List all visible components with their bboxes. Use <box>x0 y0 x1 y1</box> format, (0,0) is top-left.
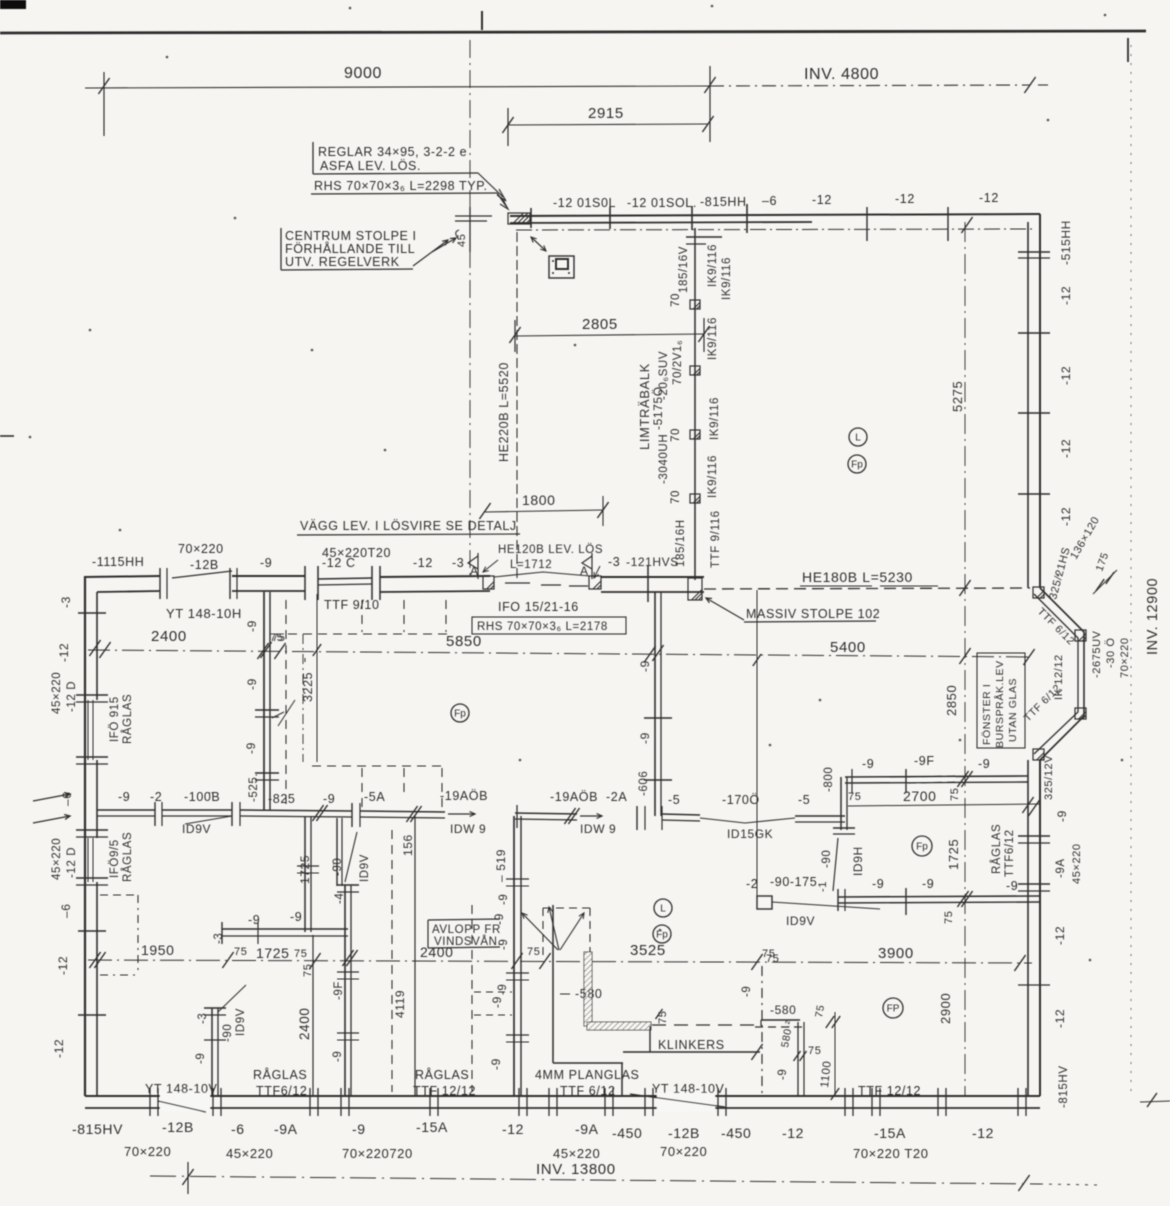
svg-text:-1115HH: -1115HH <box>92 555 144 569</box>
svg-text:70×220: 70×220 <box>124 1144 171 1159</box>
svg-text:-815HH: -815HH <box>700 195 747 209</box>
svg-text:-9: -9 <box>248 913 260 927</box>
svg-text:-5: -5 <box>668 793 680 807</box>
svg-text:-1: -1 <box>817 881 829 892</box>
svg-text:-12: -12 <box>1053 926 1067 945</box>
svg-text:-15A: -15A <box>416 1119 448 1135</box>
svg-text:-3: -3 <box>452 556 464 570</box>
svg-text:-9: -9 <box>498 894 510 905</box>
svg-text:4119: 4119 <box>393 990 407 1018</box>
svg-text:Fp: Fp <box>454 709 466 720</box>
svg-text:70: 70 <box>670 428 682 442</box>
svg-text:-9: -9 <box>260 556 272 570</box>
svg-text:45×220T20: 45×220T20 <box>322 546 391 560</box>
svg-text:2700: 2700 <box>903 788 937 804</box>
svg-text:RÅGLAS: RÅGLAS <box>253 1067 307 1082</box>
svg-text:45×220: 45×220 <box>51 838 63 880</box>
svg-text:HE120B LEV. LÖS: HE120B LEV. LÖS <box>498 544 603 556</box>
svg-text:-12 D: -12 D <box>66 847 78 878</box>
svg-text:70/2V1₆: 70/2V1₆ <box>672 340 684 385</box>
svg-text:-515HH: -515HH <box>1059 220 1073 265</box>
svg-text:-12: -12 <box>895 192 915 206</box>
svg-text:BURSPRÅK.LEV: BURSPRÅK.LEV <box>993 660 1006 748</box>
svg-text:75: 75 <box>294 948 307 960</box>
svg-text:-2675UV: -2675UV <box>1091 630 1103 678</box>
svg-text:-170Ö: -170Ö <box>722 793 760 807</box>
svg-text:Fp: Fp <box>916 842 928 853</box>
svg-text:-12B: -12B <box>668 1125 700 1141</box>
svg-text:3900: 3900 <box>878 945 914 962</box>
svg-text:-9: -9 <box>978 757 990 771</box>
svg-text:-9: -9 <box>489 1058 503 1070</box>
svg-text:-800: -800 <box>823 767 835 792</box>
svg-text:RÅGLAS: RÅGLAS <box>121 832 134 882</box>
svg-text:2850: 2850 <box>944 685 959 716</box>
svg-text:-580: -580 <box>575 987 602 1001</box>
svg-text:-12: -12 <box>1059 507 1073 526</box>
svg-text:TTF 9/116: TTF 9/116 <box>710 510 722 568</box>
svg-text:2400: 2400 <box>420 944 454 960</box>
svg-text:L: L <box>855 433 861 444</box>
svg-text:70×220: 70×220 <box>660 1144 707 1159</box>
svg-text:AVLOPP FR: AVLOPP FR <box>432 924 501 936</box>
svg-text:5400: 5400 <box>830 639 866 656</box>
svg-text:-9: -9 <box>922 877 934 891</box>
svg-text:IFO 15/21-16: IFO 15/21-16 <box>498 600 579 614</box>
svg-text:TTF6/12: TTF6/12 <box>256 1084 307 1098</box>
svg-text:VÄGG LEV. I LÖSVIRE SE DETALJ: VÄGG LEV. I LÖSVIRE SE DETALJ <box>300 519 517 533</box>
svg-text:-9: -9 <box>638 660 652 672</box>
svg-text:RHS 70×70×3₆ L=2178: RHS 70×70×3₆ L=2178 <box>477 621 608 633</box>
svg-text:-19AÖB: -19AÖB <box>440 789 488 803</box>
svg-text:-12: -12 <box>782 1125 804 1141</box>
svg-text:-30 Ö: -30 Ö <box>1105 637 1117 668</box>
svg-text:-815HV: -815HV <box>1058 1065 1070 1108</box>
svg-text:TTF 12/12: TTF 12/12 <box>413 1084 476 1098</box>
svg-text:75: 75 <box>813 1004 827 1019</box>
svg-text:2400: 2400 <box>151 628 187 645</box>
svg-text:FÖNSTER I: FÖNSTER I <box>981 684 993 745</box>
svg-text:-9: -9 <box>638 732 652 744</box>
svg-text:CENTRUM STOLPE I: CENTRUM STOLPE I <box>285 229 417 243</box>
svg-text:-121HVS: -121HVS <box>626 555 679 569</box>
svg-text:RÅGLAS: RÅGLAS <box>415 1067 469 1082</box>
svg-text:-9: -9 <box>195 1053 207 1064</box>
svg-text:45: 45 <box>456 234 468 247</box>
svg-text:1800: 1800 <box>522 492 556 508</box>
svg-text:-9: -9 <box>862 757 874 771</box>
svg-text:156: 156 <box>401 834 415 856</box>
svg-text:70×220: 70×220 <box>178 542 224 556</box>
svg-text:MASSIV STOLPE 102: MASSIV STOLPE 102 <box>746 607 880 621</box>
svg-text:-12B: -12B <box>190 558 219 572</box>
svg-text:-9: -9 <box>872 877 884 891</box>
svg-text:TTF6/12: TTF6/12 <box>1004 829 1016 877</box>
svg-text:IK9/116: IK9/116 <box>707 317 719 360</box>
svg-text:1950: 1950 <box>141 942 175 958</box>
svg-text:-19AÖB: -19AÖB <box>550 790 598 804</box>
svg-text:IDW 9: IDW 9 <box>580 822 616 836</box>
svg-text:-450: -450 <box>721 1125 751 1141</box>
svg-text:2915: 2915 <box>588 105 624 122</box>
svg-text:ID9V: ID9V <box>359 854 371 882</box>
svg-text:1725: 1725 <box>298 855 312 884</box>
svg-text:-9F: -9F <box>333 981 345 1000</box>
svg-text:-12: -12 <box>1059 286 1073 305</box>
svg-text:RÅGLAS: RÅGLAS <box>121 694 134 744</box>
svg-text:-12: -12 <box>502 1121 524 1137</box>
svg-text:-12: -12 <box>1059 366 1073 385</box>
svg-text:-9: -9 <box>1006 879 1018 893</box>
svg-text:4MM PLANGLAS: 4MM PLANGLAS <box>535 1068 639 1082</box>
svg-text:-450: -450 <box>612 1125 642 1141</box>
svg-text:INV. 4800: INV. 4800 <box>804 66 879 83</box>
svg-text:-3040UH: -3040UH <box>658 434 670 484</box>
svg-text:75: 75 <box>943 911 955 924</box>
svg-text:-12: -12 <box>413 556 433 570</box>
svg-text:ASFA LEV. LÖS.: ASFA LEV. LÖS. <box>320 159 421 173</box>
svg-text:-9: -9 <box>1055 810 1069 822</box>
svg-text:-3: -3 <box>197 1013 209 1024</box>
svg-text:-12: -12 <box>57 643 71 662</box>
svg-text:UTV. REGELVERK: UTV. REGELVERK <box>285 255 400 269</box>
svg-text:HE220B L=5520: HE220B L=5520 <box>497 362 511 462</box>
svg-text:-525.: -525. <box>248 773 260 802</box>
svg-text:-5175Ö: -5175Ö <box>651 386 665 430</box>
svg-text:ID9H: ID9H <box>851 846 865 876</box>
svg-text:-9: -9 <box>777 1069 789 1080</box>
svg-text:70×220 T20: 70×220 T20 <box>853 1146 929 1161</box>
svg-text:75: 75 <box>766 953 779 965</box>
svg-text:IDW 9: IDW 9 <box>450 822 486 836</box>
svg-text:–6: –6 <box>59 903 73 918</box>
svg-text:-90: -90 <box>821 850 833 868</box>
svg-text:3525: 3525 <box>630 942 666 959</box>
svg-text:-9: -9 <box>323 792 335 806</box>
svg-text:-6: -6 <box>231 1121 245 1137</box>
svg-text:-9: -9 <box>245 678 259 690</box>
svg-text:-9: -9 <box>290 910 302 924</box>
svg-text:185/16V: 185/16V <box>678 246 690 293</box>
svg-text:-12: -12 <box>979 191 999 205</box>
svg-text:-9: -9 <box>498 939 510 950</box>
svg-text:L=1712: L=1712 <box>510 559 552 571</box>
svg-text:–6: –6 <box>762 194 777 208</box>
svg-text:-15A: -15A <box>874 1125 906 1141</box>
svg-text:-12: -12 <box>56 956 70 975</box>
svg-text:-12: -12 <box>52 1039 66 1058</box>
svg-text:-9: -9 <box>332 1051 344 1062</box>
svg-text:FP: FP <box>887 1004 900 1015</box>
svg-text:-9: -9 <box>741 986 753 997</box>
svg-text:45×220: 45×220 <box>1071 843 1083 884</box>
svg-text:IK9/116: IK9/116 <box>707 244 719 287</box>
svg-text:Fp: Fp <box>656 930 668 941</box>
svg-text:-9: -9 <box>490 996 504 1008</box>
svg-text:5275: 5275 <box>950 381 965 412</box>
svg-text:LIMTRÄBALK: LIMTRÄBALK <box>637 363 652 450</box>
svg-text:-815HV: -815HV <box>72 1121 123 1137</box>
svg-text:-4: -4 <box>334 893 346 904</box>
svg-text:KLINKERS: KLINKERS <box>658 1038 725 1052</box>
svg-text:-9A: -9A <box>274 1121 298 1137</box>
svg-text:-9F: -9F <box>914 754 935 768</box>
svg-text:YT 148-10V: YT 148-10V <box>145 1082 218 1096</box>
svg-text:2900: 2900 <box>938 993 953 1024</box>
svg-text:-9A: -9A <box>1055 858 1067 878</box>
svg-text:-5A: -5A <box>364 790 385 804</box>
svg-text:-3: -3 <box>59 596 73 608</box>
svg-text:-9: -9 <box>118 790 130 804</box>
svg-text:RÅGLAS: RÅGLAS <box>990 824 1003 874</box>
svg-text:RHS 70×70×3₆ L=2298 TYP.: RHS 70×70×3₆ L=2298 TYP. <box>314 179 488 193</box>
svg-text:IFÖ 915: IFÖ 915 <box>109 696 121 742</box>
svg-text:-9: -9 <box>352 1121 366 1137</box>
svg-text:ID9V: ID9V <box>182 822 211 836</box>
svg-text:ID15GK: ID15GK <box>727 827 773 841</box>
svg-text:75: 75 <box>848 791 861 803</box>
svg-text:IK9/116: IK9/116 <box>709 397 721 440</box>
svg-text:-3: -3 <box>608 555 620 569</box>
svg-text:2805: 2805 <box>582 316 618 333</box>
svg-text:ID9V: ID9V <box>786 914 815 928</box>
svg-text:2400: 2400 <box>297 1008 312 1040</box>
svg-text:1725: 1725 <box>256 945 290 961</box>
svg-text:45×220: 45×220 <box>51 672 63 714</box>
svg-text:YT 148-10H: YT 148-10H <box>166 606 242 621</box>
svg-text:-90-175: -90-175 <box>770 875 817 889</box>
svg-text:70×220: 70×220 <box>1119 637 1131 678</box>
svg-text:ID9V: ID9V <box>235 1008 247 1036</box>
svg-text:75: 75 <box>808 1045 821 1057</box>
svg-text:-12B: -12B <box>162 1119 194 1135</box>
svg-text:IK9/116: IK9/116 <box>707 455 719 498</box>
svg-text:9000: 9000 <box>344 65 382 82</box>
svg-text:-90: -90 <box>222 1024 234 1042</box>
svg-text:INV. 13800: INV. 13800 <box>536 1161 616 1178</box>
svg-text:TTF 9/10: TTF 9/10 <box>324 598 380 612</box>
svg-text:TTF 12/12: TTF 12/12 <box>858 1084 921 1098</box>
svg-text:L: L <box>660 904 666 915</box>
svg-text:-9A: -9A <box>575 1121 599 1137</box>
svg-text:70×220720: 70×220720 <box>342 1146 413 1161</box>
svg-text:75: 75 <box>234 946 247 958</box>
svg-text:-12 01SOL.: -12 01SOL. <box>627 196 697 210</box>
svg-text:5850: 5850 <box>446 633 482 650</box>
svg-text:-580: -580 <box>770 1003 796 1017</box>
svg-text:75: 75 <box>272 632 285 644</box>
svg-text:-2A: -2A <box>606 790 627 804</box>
svg-text:-12: -12 <box>1059 439 1073 458</box>
svg-text:70: 70 <box>670 490 682 504</box>
svg-text:-825: -825 <box>268 792 295 806</box>
svg-text:FÖRHÅLLANDE TILL: FÖRHÅLLANDE TILL <box>285 241 415 256</box>
svg-text:-9: -9 <box>497 984 509 995</box>
svg-text:-12 01S0L: -12 01S0L <box>553 196 616 210</box>
svg-text:-9: -9 <box>245 620 259 632</box>
svg-text:75: 75 <box>527 946 540 958</box>
svg-text:HE180B L=5230: HE180B L=5230 <box>802 569 913 585</box>
svg-text:YT 148-10V: YT 148-10V <box>652 1082 725 1096</box>
svg-text:UTAN GLAS: UTAN GLAS <box>1007 678 1019 742</box>
svg-text:325/12V: 325/12V <box>1043 755 1055 800</box>
svg-text:75: 75 <box>949 788 961 801</box>
svg-text:75: 75 <box>657 1011 669 1024</box>
svg-text:-2: -2 <box>150 790 162 804</box>
svg-text:-606: -606 <box>638 771 650 796</box>
svg-text:-12 D: -12 D <box>66 681 78 712</box>
svg-text:70: 70 <box>670 293 682 307</box>
svg-text:– 519: – 519 <box>494 849 508 882</box>
svg-text:-3: -3 <box>213 933 225 944</box>
svg-text:1725: 1725 <box>946 839 961 870</box>
svg-text:45×220: 45×220 <box>553 1146 600 1161</box>
svg-text:-12: -12 <box>972 1125 994 1141</box>
svg-text:-9: -9 <box>244 742 258 754</box>
svg-text:75: 75 <box>302 964 314 977</box>
svg-text:REGLAR 34×95, 3-2-2 e: REGLAR 34×95, 3-2-2 e <box>318 145 467 159</box>
svg-text:-12: -12 <box>1053 1009 1067 1028</box>
svg-text:TTF 6/12: TTF 6/12 <box>560 1084 616 1098</box>
svg-text:Fp: Fp <box>851 460 863 471</box>
svg-text:-5: -5 <box>798 793 810 807</box>
svg-text:IFÖ9/5: IFÖ9/5 <box>109 839 121 878</box>
svg-text:-100̈B: -100̈B <box>184 790 220 804</box>
svg-text:45×220: 45×220 <box>226 1146 273 1161</box>
svg-text:-12: -12 <box>812 193 832 207</box>
svg-text:-2: -2 <box>746 877 758 891</box>
svg-text:IK9/116: IK9/116 <box>721 257 733 300</box>
svg-text:INV. 12900: INV. 12900 <box>1145 578 1161 655</box>
